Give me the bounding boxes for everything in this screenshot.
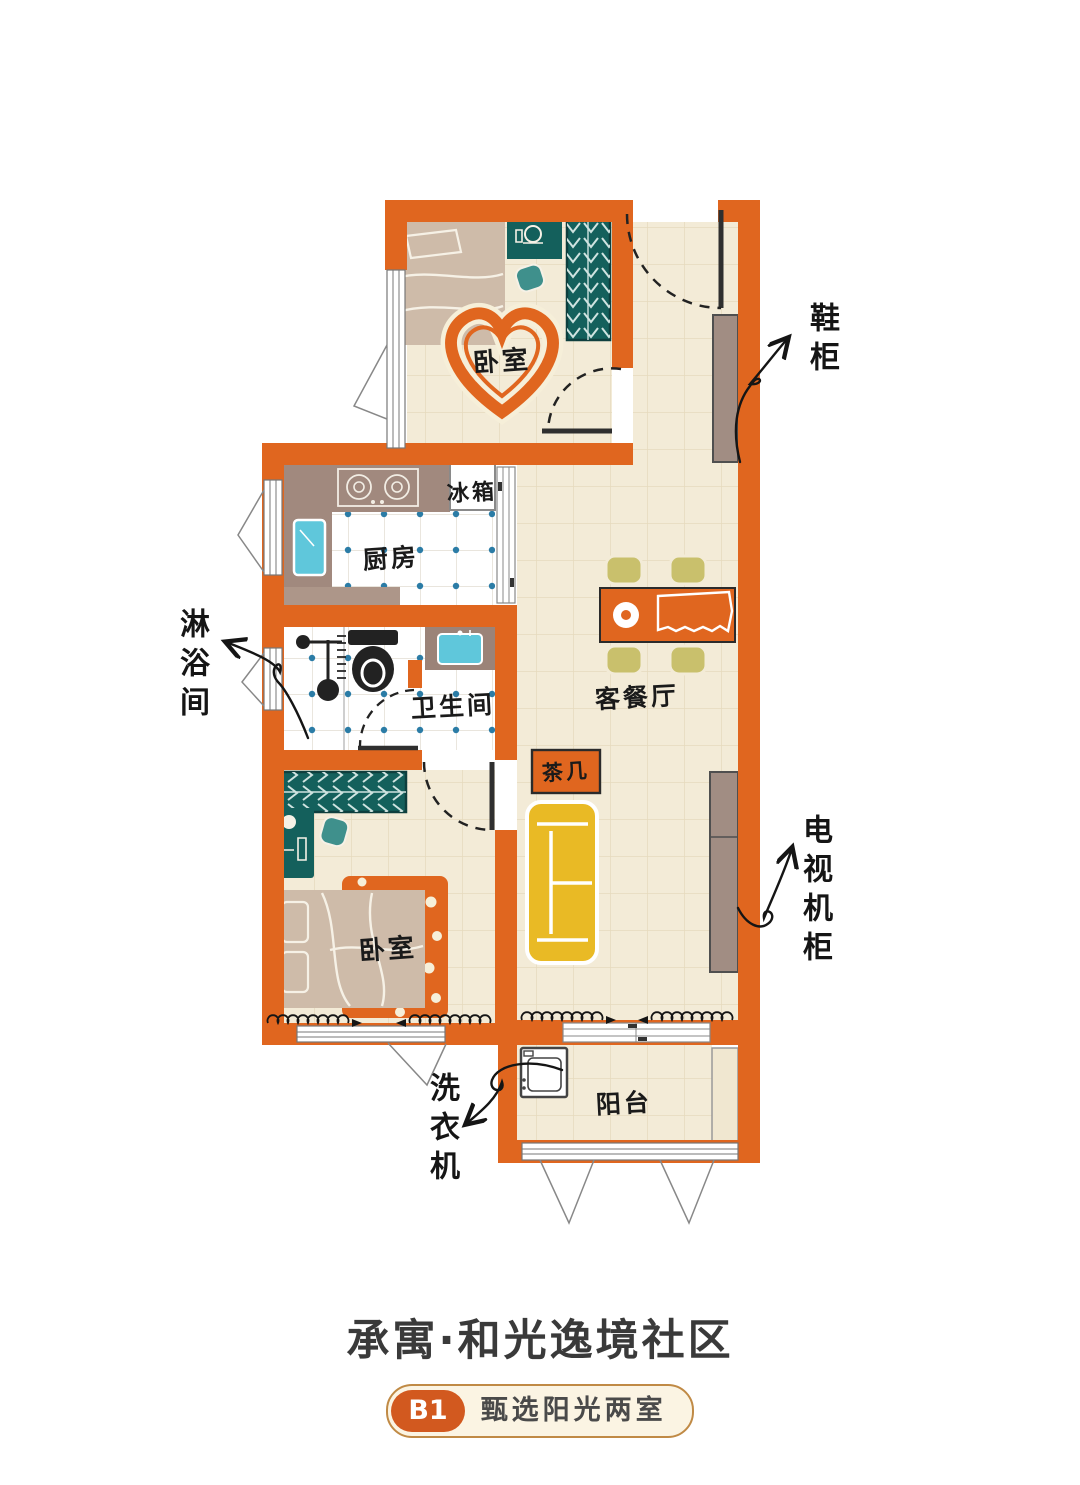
- sliding-door-kitchen: [497, 467, 515, 603]
- callout-shower-room: 淋浴间: [176, 608, 206, 725]
- window-bedroom-top: [354, 270, 405, 448]
- wall-right: [738, 200, 760, 1163]
- label-bedroom-top: 卧室: [472, 344, 532, 379]
- wall-kitchen-top: [262, 443, 633, 465]
- floor-plan-drawing: 卧室 冰箱 厨房 卫生间 客餐厅 茶几 卧室 阳台: [125, 185, 895, 1260]
- window-kitchen: [238, 480, 282, 575]
- unit-badge: B1 甄选阳光两室: [386, 1384, 693, 1438]
- wall-top-left: [385, 200, 625, 222]
- wall-bedroom-top-right: [612, 200, 633, 368]
- label-fridge: 冰箱: [446, 479, 497, 508]
- callout-washing-machine: 洗衣机: [426, 1072, 456, 1189]
- tv-cabinet: [710, 772, 738, 972]
- wall-kitchen-bottom: [262, 605, 495, 627]
- washing-machine: [521, 1048, 567, 1097]
- wash-basin: [425, 627, 495, 670]
- window-balcony: [522, 1143, 738, 1223]
- label-bedroom-bottom: 卧室: [358, 932, 418, 967]
- footer-branding: 承寓·和光逸境社区 B1 甄选阳光两室: [0, 1306, 1080, 1438]
- wall-inner-vertical-a: [495, 605, 517, 760]
- wall-bathroom-stub: [408, 660, 422, 688]
- desk-top: [507, 218, 562, 259]
- label-living-dining: 客餐厅: [594, 681, 679, 714]
- label-kitchen: 厨房: [362, 542, 420, 575]
- floor-plan-page: 卧室 冰箱 厨房 卫生间 客餐厅 茶几 卧室 阳台 鞋柜 淋浴间 电视机柜 洗衣…: [0, 0, 1080, 1485]
- wardrobe-top: [567, 219, 610, 340]
- kitchen-sink: [294, 520, 325, 575]
- community-name: 承寓·和光逸境社区: [0, 1306, 1080, 1368]
- wall-bathroom-bottom: [262, 750, 422, 770]
- unit-description: 甄选阳光两室: [465, 1395, 689, 1427]
- unit-code-badge: B1: [391, 1390, 464, 1432]
- balcony-cabinet: [712, 1048, 738, 1144]
- label-balcony: 阳台: [595, 1088, 652, 1120]
- shoe-cabinet: [713, 315, 738, 462]
- wall-inner-vertical-b: [495, 830, 517, 1023]
- callout-shoe-cabinet: 鞋柜: [806, 302, 836, 380]
- label-tea-table: 茶几: [541, 758, 591, 785]
- label-bathroom: 卫生间: [410, 690, 495, 723]
- wardrobe-bottom: [278, 772, 406, 812]
- callout-tv-cabinet: 电视机柜: [799, 814, 829, 970]
- sliding-door-balcony: [563, 1023, 710, 1042]
- sofa: [527, 802, 597, 963]
